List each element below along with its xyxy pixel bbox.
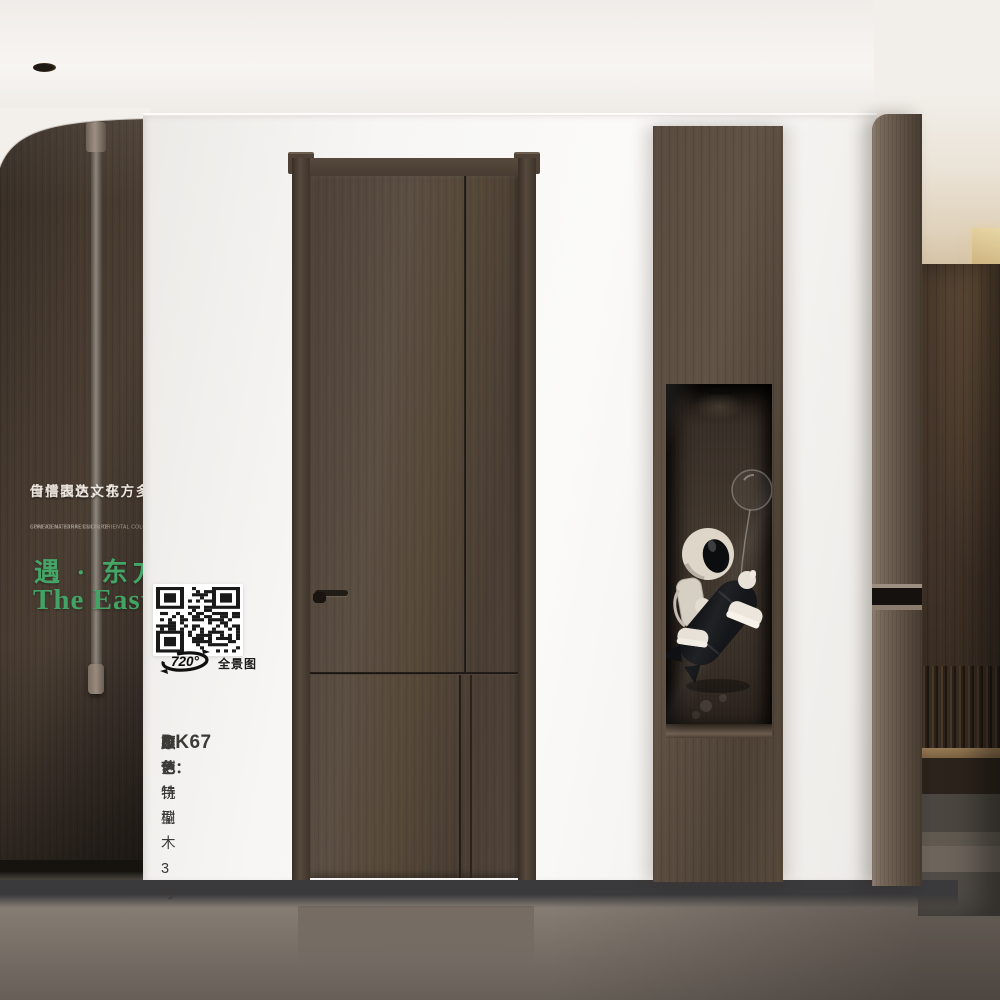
ceiling: [0, 0, 1000, 122]
wood-feature-wall: 传播国色文化 自信表达，东方多彩！ SPREAD NATIONAL CULTUR…: [0, 112, 143, 872]
interior-door: [288, 150, 540, 880]
door-handle-grip: [313, 592, 326, 603]
side-room: [918, 264, 1000, 916]
wood-pillar: [872, 114, 922, 886]
panorama-label: 全景图: [218, 655, 257, 672]
showroom-scene: 传播国色文化 自信表达，东方多彩！ SPREAD NATIONAL CULTUR…: [0, 0, 1000, 1000]
qr-finder-icon: [212, 587, 240, 609]
product-craft-value: 雕刻铣型: [161, 732, 176, 832]
qr-code-modules: [156, 587, 240, 653]
ceiling-downlight-icon: [33, 63, 56, 72]
door-groove-vertical-lower-1: [459, 675, 461, 878]
door-groove-vertical-upper: [464, 176, 467, 674]
door-groove-vertical-lower-2: [470, 675, 472, 878]
qr-code: [153, 584, 243, 656]
floor-skirting-shadow: [0, 880, 958, 908]
pillar-handle-slot: [872, 584, 922, 610]
panorama-degrees: 720°: [160, 648, 210, 675]
niche-glass-reflection: [666, 384, 772, 738]
door-groove-horizontal: [310, 672, 518, 675]
rod-end-cap: [88, 664, 104, 694]
door-floor-reflection: [298, 906, 534, 980]
door-handle: [313, 588, 349, 604]
door-frame-right: [518, 158, 536, 880]
qr-finder-icon: [156, 587, 184, 609]
display-niche: [666, 384, 772, 738]
panorama-rotation-icon: 720°: [160, 648, 210, 675]
display-niche-column: [653, 126, 783, 882]
ceiling-cove-curve: [0, 108, 150, 168]
panorama-badge: 720° 全景图: [160, 648, 300, 678]
door-frame-left: [292, 158, 310, 880]
door-slab: [310, 176, 518, 878]
side-room-shade: [918, 264, 1000, 916]
